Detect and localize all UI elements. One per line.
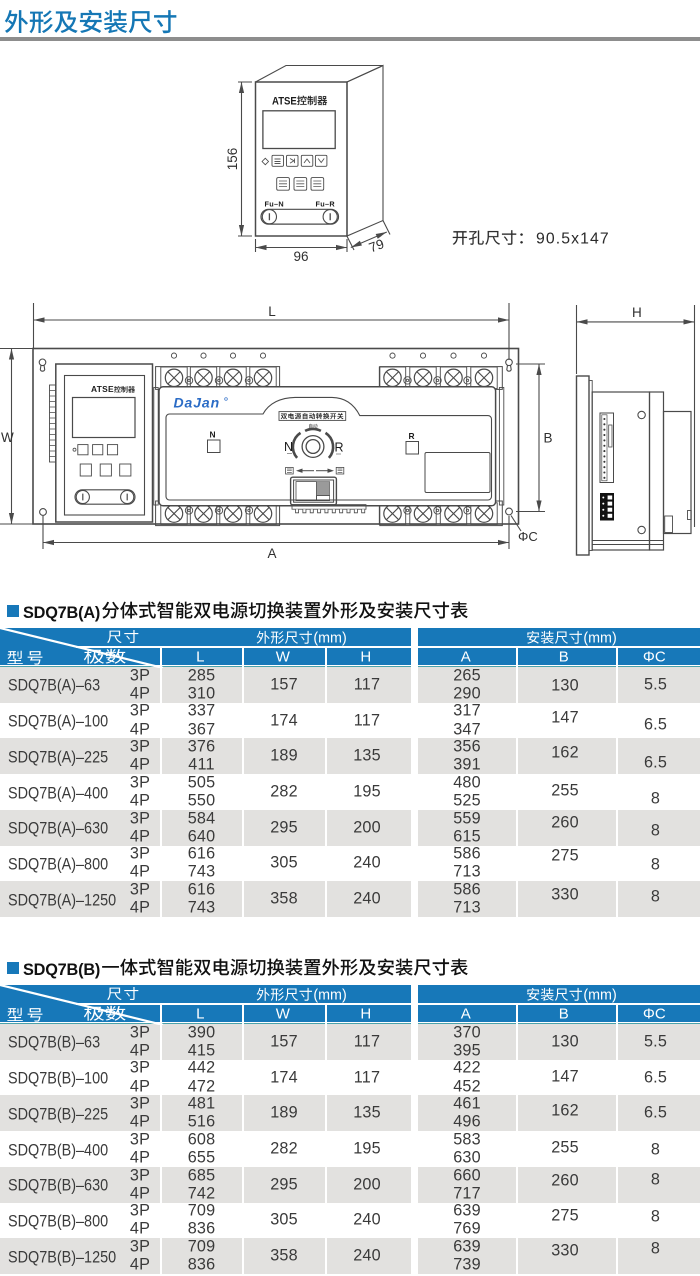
svg-text:DaJan: DaJan: [174, 395, 221, 411]
svg-text:(mm): (mm): [583, 987, 616, 1003]
svg-text:N: N: [210, 430, 216, 440]
svg-text:156: 156: [225, 148, 240, 171]
svg-text:R: R: [335, 441, 344, 455]
svg-text:Fu–N: Fu–N: [265, 200, 284, 209]
svg-text:SDQ7B(A): SDQ7B(A): [23, 603, 100, 621]
svg-text:R: R: [409, 431, 415, 441]
svg-text:ATSE: ATSE: [272, 96, 297, 108]
svg-text:(mm): (mm): [583, 630, 616, 646]
svg-text:(mm): (mm): [313, 987, 346, 1003]
svg-text:(mm): (mm): [313, 630, 346, 646]
svg-text:SDQ7B(B): SDQ7B(B): [23, 960, 100, 978]
svg-text:96: 96: [293, 249, 308, 264]
svg-text:N: N: [284, 440, 293, 454]
svg-text:Fu–R: Fu–R: [316, 200, 336, 209]
svg-text:90.5x147: 90.5x147: [536, 231, 610, 248]
svg-text:H: H: [632, 305, 642, 320]
